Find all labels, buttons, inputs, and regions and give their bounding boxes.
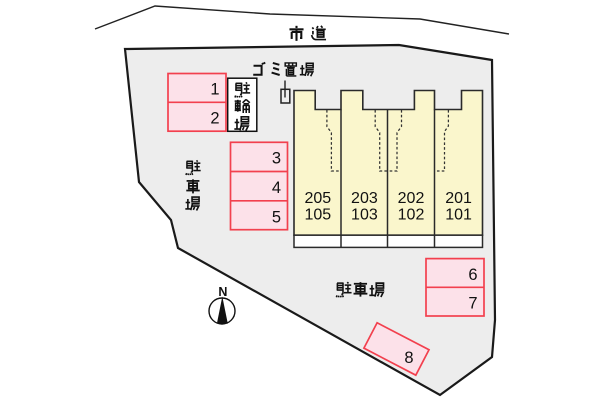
- svg-text:101: 101: [445, 206, 472, 223]
- svg-text:5: 5: [272, 208, 281, 226]
- svg-text:105: 105: [304, 206, 331, 223]
- svg-text:7: 7: [468, 295, 477, 313]
- svg-text:102: 102: [398, 206, 425, 223]
- svg-text:103: 103: [351, 206, 378, 223]
- svg-text:8: 8: [404, 349, 413, 367]
- svg-text:1: 1: [210, 81, 219, 99]
- svg-text:203: 203: [351, 190, 378, 207]
- svg-text:6: 6: [468, 266, 477, 284]
- svg-text:201: 201: [445, 190, 472, 207]
- svg-text:4: 4: [272, 179, 281, 197]
- svg-text:2: 2: [210, 110, 219, 128]
- svg-text:205: 205: [304, 190, 331, 207]
- svg-text:3: 3: [272, 150, 281, 168]
- svg-text:N: N: [218, 285, 227, 299]
- svg-text:202: 202: [398, 190, 425, 207]
